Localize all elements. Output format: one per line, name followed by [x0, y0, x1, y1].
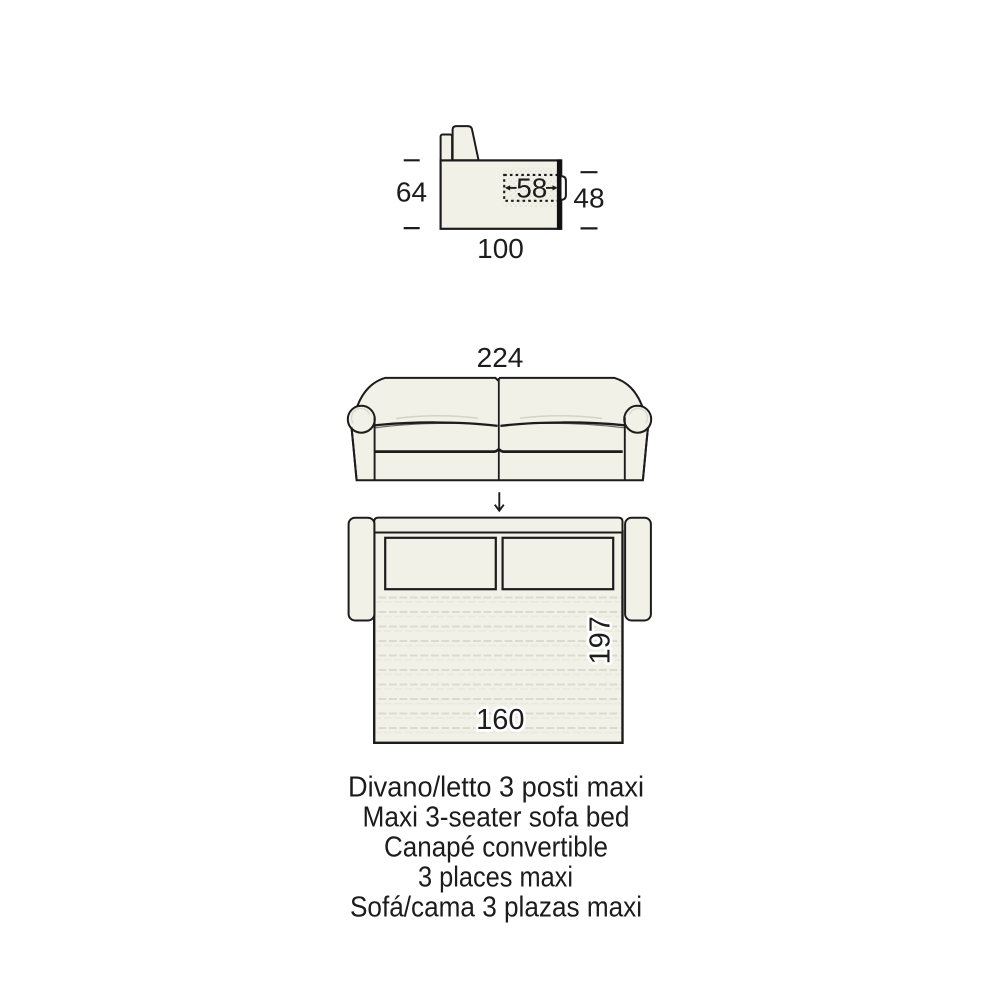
svg-text:64: 64 [396, 177, 427, 208]
svg-text:48: 48 [573, 183, 604, 214]
svg-text:224: 224 [477, 342, 524, 373]
svg-text:100: 100 [477, 233, 524, 264]
svg-text:197: 197 [585, 616, 617, 664]
svg-text:3 places maxi: 3 places maxi [418, 861, 573, 893]
svg-text:58: 58 [516, 173, 547, 204]
svg-text:Sofá/cama 3 plazas maxi: Sofá/cama 3 plazas maxi [350, 891, 642, 923]
svg-text:Maxi 3-seater sofa bed: Maxi 3-seater sofa bed [363, 801, 630, 833]
svg-text:160: 160 [476, 704, 524, 736]
svg-text:Canapé convertible: Canapé convertible [384, 831, 608, 863]
svg-text:Divano/letto 3 posti maxi: Divano/letto 3 posti maxi [348, 771, 644, 803]
